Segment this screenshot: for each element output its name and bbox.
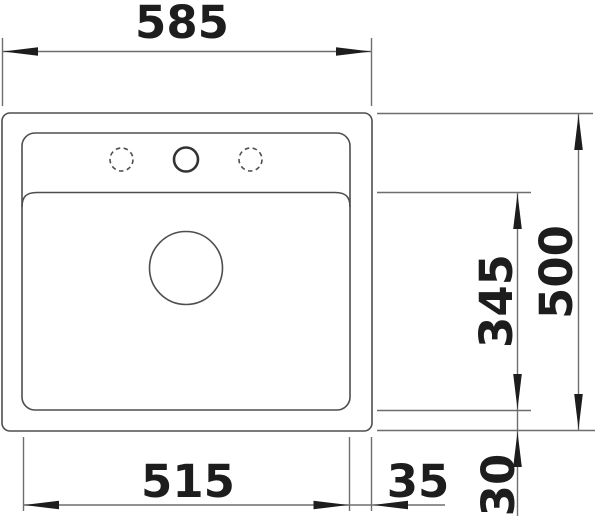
sink-rim-edge (22, 133, 350, 410)
sink-outer-edge (2, 113, 372, 431)
tap-hole-right-optional (239, 148, 262, 171)
arrow-up-icon (513, 194, 522, 230)
sink-body (2, 113, 372, 431)
arrow-right-icon (314, 501, 349, 510)
sink-technical-drawing: 585 500 345 30 (0, 0, 600, 519)
rim-offset-bottom-label: 30 (472, 454, 525, 517)
dimension-rim-offset-bottom: 30 (472, 432, 525, 517)
arrow-right-icon (336, 47, 371, 56)
dimension-overall-width: 585 (3, 0, 372, 106)
arrow-left-icon (3, 47, 38, 56)
arrow-up-icon (574, 115, 583, 151)
overall-width-label: 585 (135, 0, 229, 49)
overall-depth-label: 500 (530, 225, 583, 319)
arrow-left-icon (24, 501, 59, 510)
bowl-top-edge (22, 193, 350, 208)
tap-hole-left-optional (110, 148, 133, 171)
bowl-depth-label: 345 (470, 254, 523, 348)
tap-holes (110, 148, 262, 172)
tap-hole-center (174, 148, 198, 172)
arrow-down-icon (513, 374, 522, 410)
bowl-width-label: 515 (141, 455, 235, 508)
arrow-down-icon (574, 394, 583, 430)
rim-offset-right-label: 35 (387, 455, 450, 508)
dimension-bowl-width: 515 35 (24, 437, 450, 511)
drain-hole (150, 232, 223, 305)
drawing-svg: 585 500 345 30 (0, 0, 600, 519)
